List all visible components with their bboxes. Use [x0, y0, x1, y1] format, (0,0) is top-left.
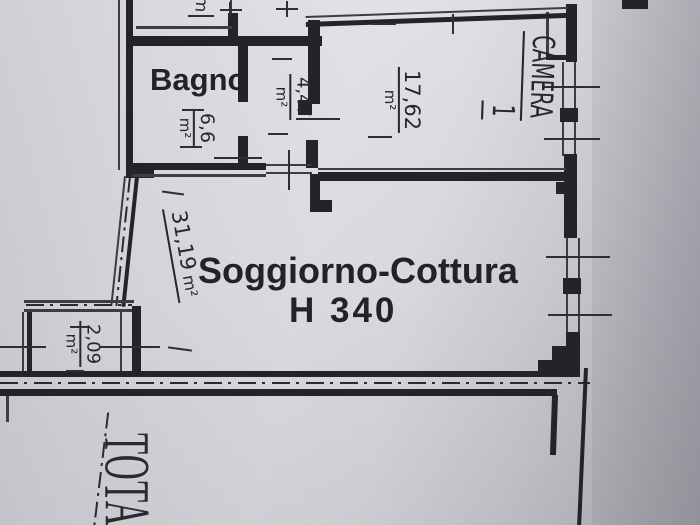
camera-name: CAMERA	[519, 31, 560, 122]
wall-bottom-right-stub	[550, 395, 558, 455]
paper-shadow-right	[592, 0, 700, 525]
measure-tick	[544, 138, 600, 140]
area-unit: m²	[176, 118, 193, 139]
area-unit: m²	[273, 87, 290, 108]
wall-right-step-b	[552, 346, 568, 374]
wall-fragment-top-right	[622, 0, 648, 9]
room-label-camera: CAMERA 1	[481, 30, 560, 123]
wall-bagno-bottom	[132, 163, 266, 170]
area-label-corridor: 4,47 m²	[273, 74, 312, 120]
window-camera-mullion	[560, 108, 578, 122]
measure-tick	[66, 370, 84, 372]
measure-tick	[214, 157, 262, 159]
area-label-bagno: 6,6 m²	[176, 110, 216, 146]
total-label-partial: TOTA	[89, 433, 163, 525]
measure-tick	[368, 136, 392, 138]
measure-tick	[272, 58, 292, 60]
area-value: 6,6	[193, 110, 216, 146]
wall-camera-top	[306, 7, 568, 28]
upper-room-partial-label: m	[190, 0, 211, 13]
wall-right-mid-bump	[556, 182, 566, 194]
area-unit: m²	[381, 90, 398, 111]
wall-bagno-corridor-top	[132, 36, 322, 46]
measure-tick	[168, 346, 192, 351]
measure-tick	[70, 326, 88, 328]
measure-tick	[182, 109, 204, 111]
area-label-camera: 17,62 m²	[381, 67, 423, 133]
wall-bagno-bottom-thin	[132, 174, 266, 177]
wall-balcony-left	[27, 312, 32, 374]
measure-tick	[220, 9, 242, 11]
wall-balcony-right	[132, 306, 141, 374]
wall-bottom-axis-dashdot	[0, 382, 590, 384]
measure-tick	[548, 314, 612, 316]
wall-camera-bottom	[318, 172, 568, 181]
wall-right-step-a	[566, 332, 580, 374]
measure-tick	[188, 15, 214, 17]
wall-upper-room-bottom	[136, 26, 232, 29]
room-label-bagno: Bagno	[150, 62, 246, 98]
wall-left-outer-thin	[118, 0, 120, 170]
wall-balcony-left-thin	[22, 312, 24, 374]
area-unit: m²	[63, 334, 80, 355]
wall-pillar-foot	[310, 200, 332, 212]
soggiorno-height-label: H 340	[289, 291, 397, 331]
wall-right-step-c	[538, 360, 554, 374]
measure-tick	[286, 1, 288, 17]
measure-tick	[100, 346, 160, 348]
measure-tick	[372, 23, 396, 25]
area-value: 4,47	[289, 74, 311, 120]
wall-balcony-top-a	[24, 300, 134, 303]
measure-tick	[162, 190, 184, 195]
floor-plan-photo: m Bagno 6,6 m² 4,47 m² 17,62 m² CAMERA 1…	[0, 0, 700, 525]
wall-bottom-upper-line	[0, 371, 580, 377]
measure-tick	[180, 146, 202, 148]
wall-balcony-top-dash	[26, 304, 132, 306]
measure-tick	[268, 133, 288, 135]
measure-tick	[0, 346, 46, 348]
window-soggiorno-mullion	[563, 278, 581, 294]
wall-bottom-left-stub	[6, 396, 9, 422]
area-value: 31,19	[167, 209, 201, 272]
area-value: 17,62	[398, 67, 423, 133]
measure-tick	[452, 14, 454, 34]
wall-left-outer	[126, 0, 133, 172]
wall-bottom-lower-line	[0, 389, 557, 396]
wall-camera-bottom-thin	[318, 168, 566, 170]
wall-right-mid	[564, 154, 577, 238]
camera-number: 1	[481, 100, 520, 121]
area-unit: m²	[179, 273, 202, 298]
room-label-soggiorno: Soggiorno-Cottura	[198, 250, 518, 292]
wall-balcony-right-thin	[120, 312, 122, 372]
wall-right-outer-lower	[577, 368, 588, 525]
wall-left-lower	[110, 176, 140, 307]
measure-tick	[288, 150, 290, 190]
measure-tick	[229, 2, 231, 18]
measure-tick	[546, 256, 610, 258]
